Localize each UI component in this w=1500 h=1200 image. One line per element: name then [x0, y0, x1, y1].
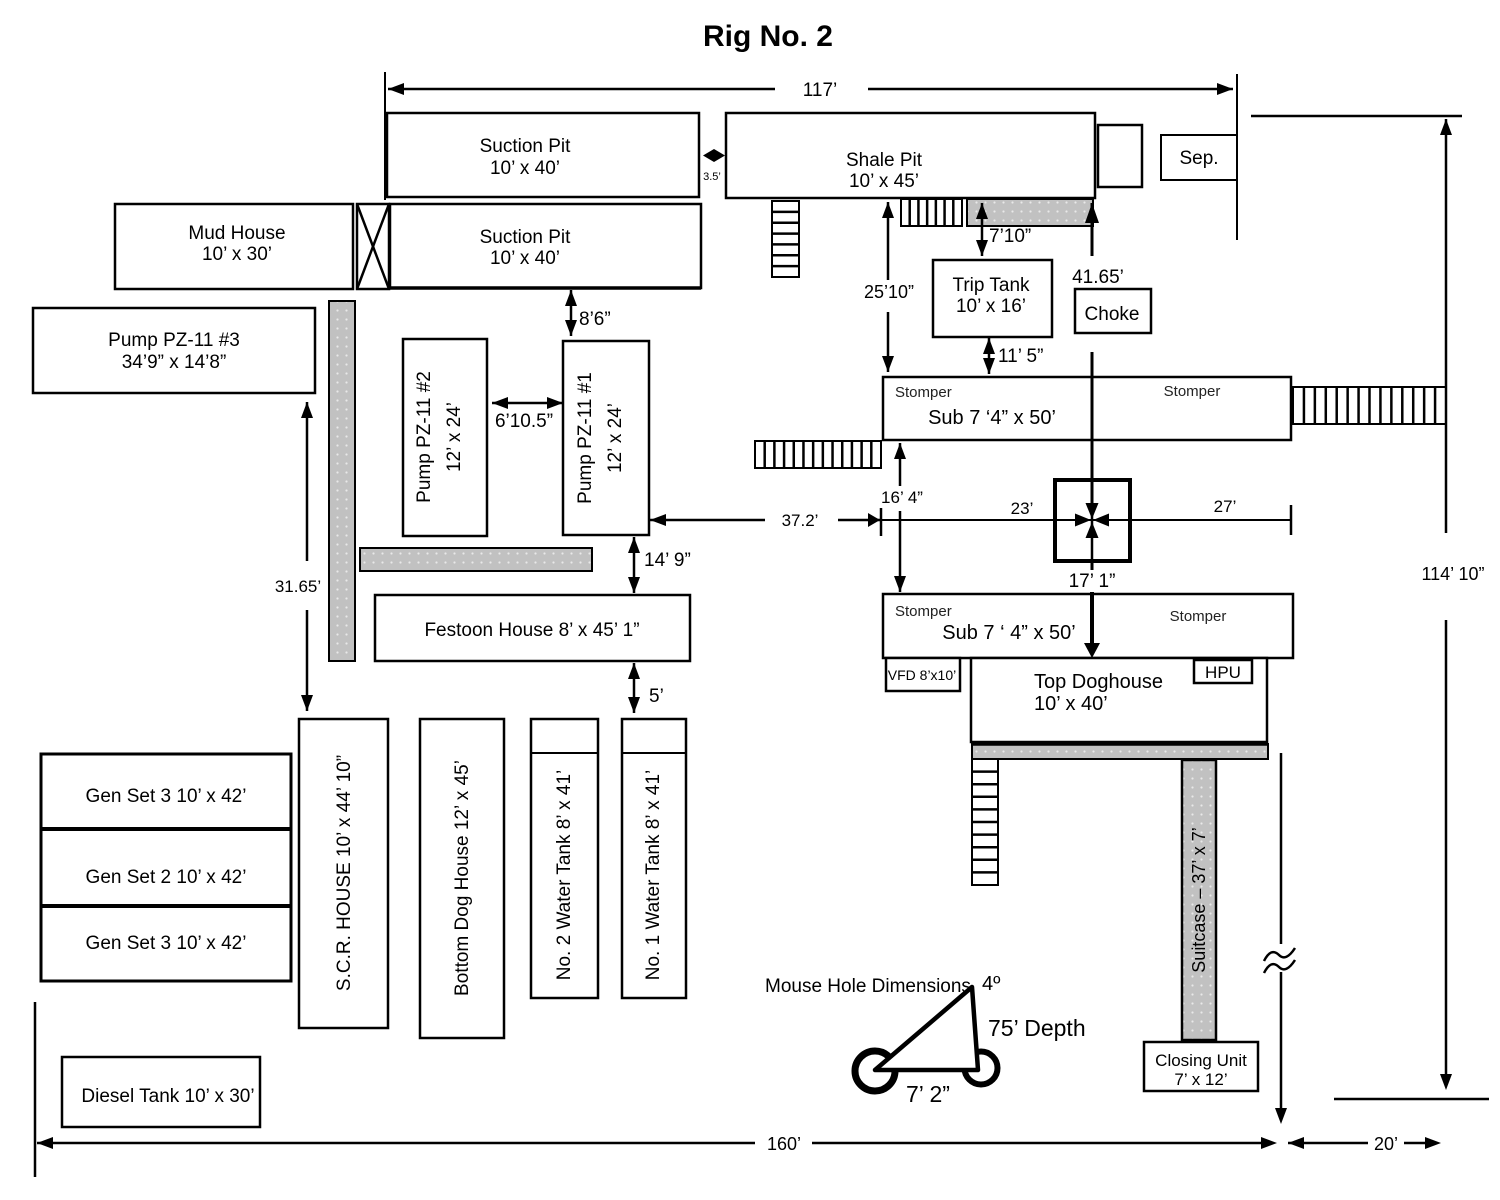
svg-text:S.C.R. HOUSE 10’ x 44’ 10”: S.C.R. HOUSE 10’ x 44’ 10”	[334, 755, 355, 991]
svg-text:Stomper: Stomper	[1164, 383, 1221, 400]
svg-text:Pump PZ-11 #2: Pump PZ-11 #2	[414, 371, 435, 503]
svg-text:No. 1 Water Tank 8’ x 41’: No. 1 Water Tank 8’ x 41’	[643, 770, 664, 981]
svg-text:10’ x 40’: 10’ x 40’	[490, 248, 560, 269]
svg-text:41.65’: 41.65’	[1072, 267, 1124, 288]
svg-text:31.65’: 31.65’	[275, 577, 321, 596]
svg-text:12’ x 24’: 12’ x 24’	[605, 403, 626, 473]
svg-text:Pump PZ-11 #3: Pump PZ-11 #3	[108, 330, 240, 351]
svg-text:4º: 4º	[982, 973, 1001, 995]
svg-text:3.5’: 3.5’	[703, 171, 721, 183]
svg-text:10’ x 45’: 10’ x 45’	[849, 171, 919, 192]
svg-text:20’: 20’	[1374, 1134, 1398, 1154]
svg-text:Diesel Tank 10’ x 30’: Diesel Tank 10’ x 30’	[81, 1086, 254, 1107]
svg-text:14’ 9”: 14’ 9”	[644, 550, 691, 571]
svg-text:37.2’: 37.2’	[782, 511, 819, 530]
svg-text:Gen Set 3 10’ x 42’: Gen Set 3 10’ x 42’	[86, 933, 247, 954]
svg-text:Festoon House 8’ x 45’ 1”: Festoon House 8’ x 45’ 1”	[424, 620, 639, 641]
svg-text:Sep.: Sep.	[1179, 148, 1218, 169]
svg-text:Stomper: Stomper	[895, 384, 952, 401]
svg-text:Top Doghouse: Top Doghouse	[1034, 671, 1163, 693]
svg-text:117’: 117’	[803, 80, 838, 101]
svg-text:Closing Unit: Closing Unit	[1155, 1051, 1247, 1070]
svg-text:Mouse Hole Dimensions: Mouse Hole Dimensions	[765, 976, 971, 997]
svg-text:Suction Pit: Suction Pit	[480, 136, 572, 157]
svg-text:23’: 23’	[1011, 499, 1034, 518]
svg-text:11’ 5”: 11’ 5”	[998, 346, 1043, 367]
svg-text:No. 2 Water Tank 8’ x 41’: No. 2 Water Tank 8’ x 41’	[554, 770, 575, 981]
svg-text:12’ x 24’: 12’ x 24’	[444, 402, 465, 472]
svg-text:10’ x 16’: 10’ x 16’	[956, 296, 1026, 317]
svg-text:Pump PZ-11 #1: Pump PZ-11 #1	[575, 372, 596, 504]
svg-text:Choke: Choke	[1085, 304, 1140, 325]
svg-text:17’ 1”: 17’ 1”	[1069, 571, 1116, 592]
svg-text:Sub 7 ‘ 4” x 50’: Sub 7 ‘ 4” x 50’	[942, 622, 1075, 644]
svg-text:25’10”: 25’10”	[864, 282, 914, 302]
svg-text:Mud House: Mud House	[188, 223, 285, 244]
svg-text:VFD 8’x10’: VFD 8’x10’	[888, 667, 956, 683]
svg-text:10’ x 40’: 10’ x 40’	[490, 158, 560, 179]
svg-text:HPU: HPU	[1205, 663, 1241, 682]
svg-text:Trip Tank: Trip Tank	[952, 275, 1030, 296]
svg-text:5’: 5’	[649, 686, 664, 707]
svg-text:Gen Set 2 10’ x 42’: Gen Set 2 10’ x 42’	[86, 867, 247, 888]
svg-text:7’ 2”: 7’ 2”	[906, 1081, 950, 1107]
svg-text:7’10”: 7’10”	[989, 226, 1031, 247]
svg-text:Bottom Dog House 12’ x 45’: Bottom Dog House 12’ x 45’	[452, 760, 473, 996]
svg-text:27’: 27’	[1214, 497, 1237, 516]
svg-text:Rig No. 2: Rig No. 2	[703, 20, 833, 53]
svg-text:10’ x 30’: 10’ x 30’	[202, 244, 272, 265]
svg-text:Shale Pit: Shale Pit	[846, 150, 923, 171]
svg-text:160’: 160’	[767, 1134, 801, 1154]
svg-text:10’ x 40’: 10’ x 40’	[1034, 693, 1108, 715]
svg-text:Stomper: Stomper	[895, 603, 952, 620]
svg-text:Sub 7 ‘4” x 50’: Sub 7 ‘4” x 50’	[928, 407, 1056, 429]
svg-text:34’9” x 14’8”: 34’9” x 14’8”	[122, 352, 227, 373]
svg-text:Gen Set 3 10’ x 42’: Gen Set 3 10’ x 42’	[86, 786, 247, 807]
svg-text:16’ 4”: 16’ 4”	[881, 488, 923, 507]
svg-text:8’6”: 8’6”	[579, 309, 611, 330]
svg-text:Suction Pit: Suction Pit	[480, 227, 572, 248]
svg-text:7’ x 12’: 7’ x 12’	[1174, 1070, 1227, 1089]
svg-text:75’ Depth: 75’ Depth	[988, 1015, 1086, 1041]
svg-text:Stomper: Stomper	[1170, 608, 1227, 625]
svg-text:Suitcase – 37’ x 7’: Suitcase – 37’ x 7’	[1189, 827, 1209, 972]
svg-text:114’ 10”: 114’ 10”	[1421, 564, 1484, 584]
svg-text:6’10.5”: 6’10.5”	[495, 411, 553, 432]
